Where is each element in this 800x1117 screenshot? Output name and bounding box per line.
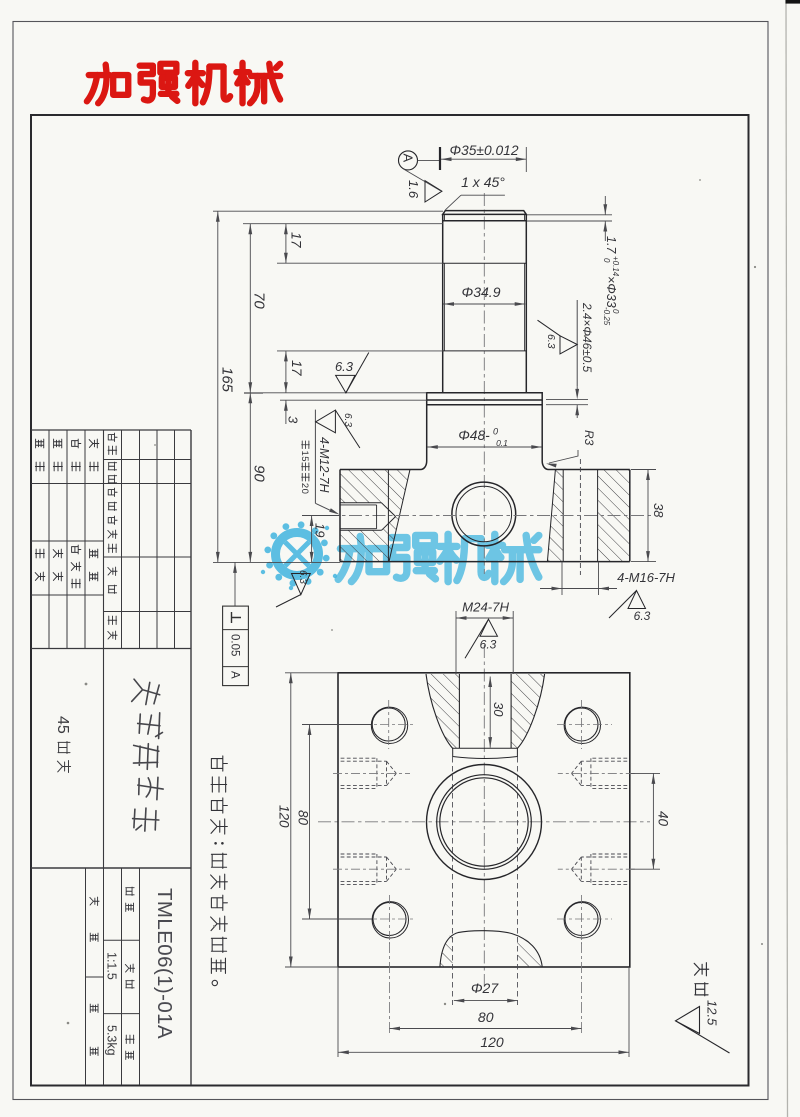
svg-text:+0.14: +0.14 — [611, 256, 620, 277]
svg-text:120: 120 — [276, 805, 291, 828]
svg-text:80: 80 — [478, 1009, 494, 1025]
svg-text:40: 40 — [655, 811, 670, 827]
svg-text:5.3kg: 5.3kg — [105, 1025, 119, 1056]
svg-text:1 x 45°: 1 x 45° — [461, 174, 505, 190]
svg-text:0: 0 — [602, 258, 611, 263]
svg-text:165: 165 — [218, 367, 235, 393]
svg-text:120: 120 — [480, 1034, 504, 1050]
svg-text:6.3: 6.3 — [634, 609, 651, 623]
svg-text:30: 30 — [491, 702, 506, 717]
svg-text:TMLE06(1)-01A: TMLE06(1)-01A — [153, 888, 176, 1039]
svg-text:0: 0 — [611, 309, 620, 314]
svg-text:6.3: 6.3 — [335, 359, 354, 374]
svg-text:0: 0 — [299, 489, 310, 494]
svg-text:5: 5 — [299, 456, 310, 461]
svg-text:4-M16-7H: 4-M16-7H — [617, 570, 675, 585]
svg-text:17: 17 — [289, 232, 305, 249]
svg-text:1.6: 1.6 — [406, 180, 421, 199]
svg-text:0.1: 0.1 — [496, 438, 508, 448]
svg-text:6.3: 6.3 — [545, 334, 557, 349]
svg-text:-0.25: -0.25 — [602, 307, 611, 326]
svg-text:3: 3 — [286, 416, 301, 424]
svg-text:2.4×Φ46±0.5: 2.4×Φ46±0.5 — [580, 302, 594, 373]
svg-text:70: 70 — [250, 292, 267, 309]
svg-text:1: 1 — [299, 451, 310, 456]
svg-text:6.3: 6.3 — [342, 413, 353, 427]
svg-text:6.3: 6.3 — [480, 638, 497, 652]
svg-text:Φ34.9: Φ34.9 — [462, 284, 501, 300]
svg-text:19: 19 — [313, 523, 328, 537]
svg-text:12.5: 12.5 — [705, 1000, 720, 1026]
svg-text:1:1.5: 1:1.5 — [105, 952, 119, 980]
svg-text:38: 38 — [651, 503, 666, 518]
svg-text:M24-7H: M24-7H — [462, 600, 509, 615]
svg-text:80: 80 — [295, 810, 310, 826]
svg-text:4-M12-7H: 4-M12-7H — [317, 437, 331, 494]
svg-text:2: 2 — [299, 483, 310, 488]
svg-text:Φ48-: Φ48- — [458, 428, 490, 443]
svg-text:Φ35±0.012: Φ35±0.012 — [450, 143, 519, 158]
svg-text:17: 17 — [289, 360, 305, 377]
svg-text:A: A — [229, 671, 241, 679]
svg-text:90: 90 — [250, 465, 267, 482]
svg-text:6.3: 6.3 — [297, 570, 308, 584]
svg-text:×Φ33: ×Φ33 — [604, 276, 618, 308]
svg-text:Φ27: Φ27 — [471, 980, 500, 996]
svg-text:A: A — [401, 154, 416, 163]
svg-text:1.7: 1.7 — [604, 236, 618, 254]
svg-text:45: 45 — [54, 716, 71, 734]
svg-text:0.05: 0.05 — [229, 634, 241, 656]
svg-text:R3: R3 — [582, 430, 596, 446]
svg-text:0: 0 — [493, 427, 498, 437]
